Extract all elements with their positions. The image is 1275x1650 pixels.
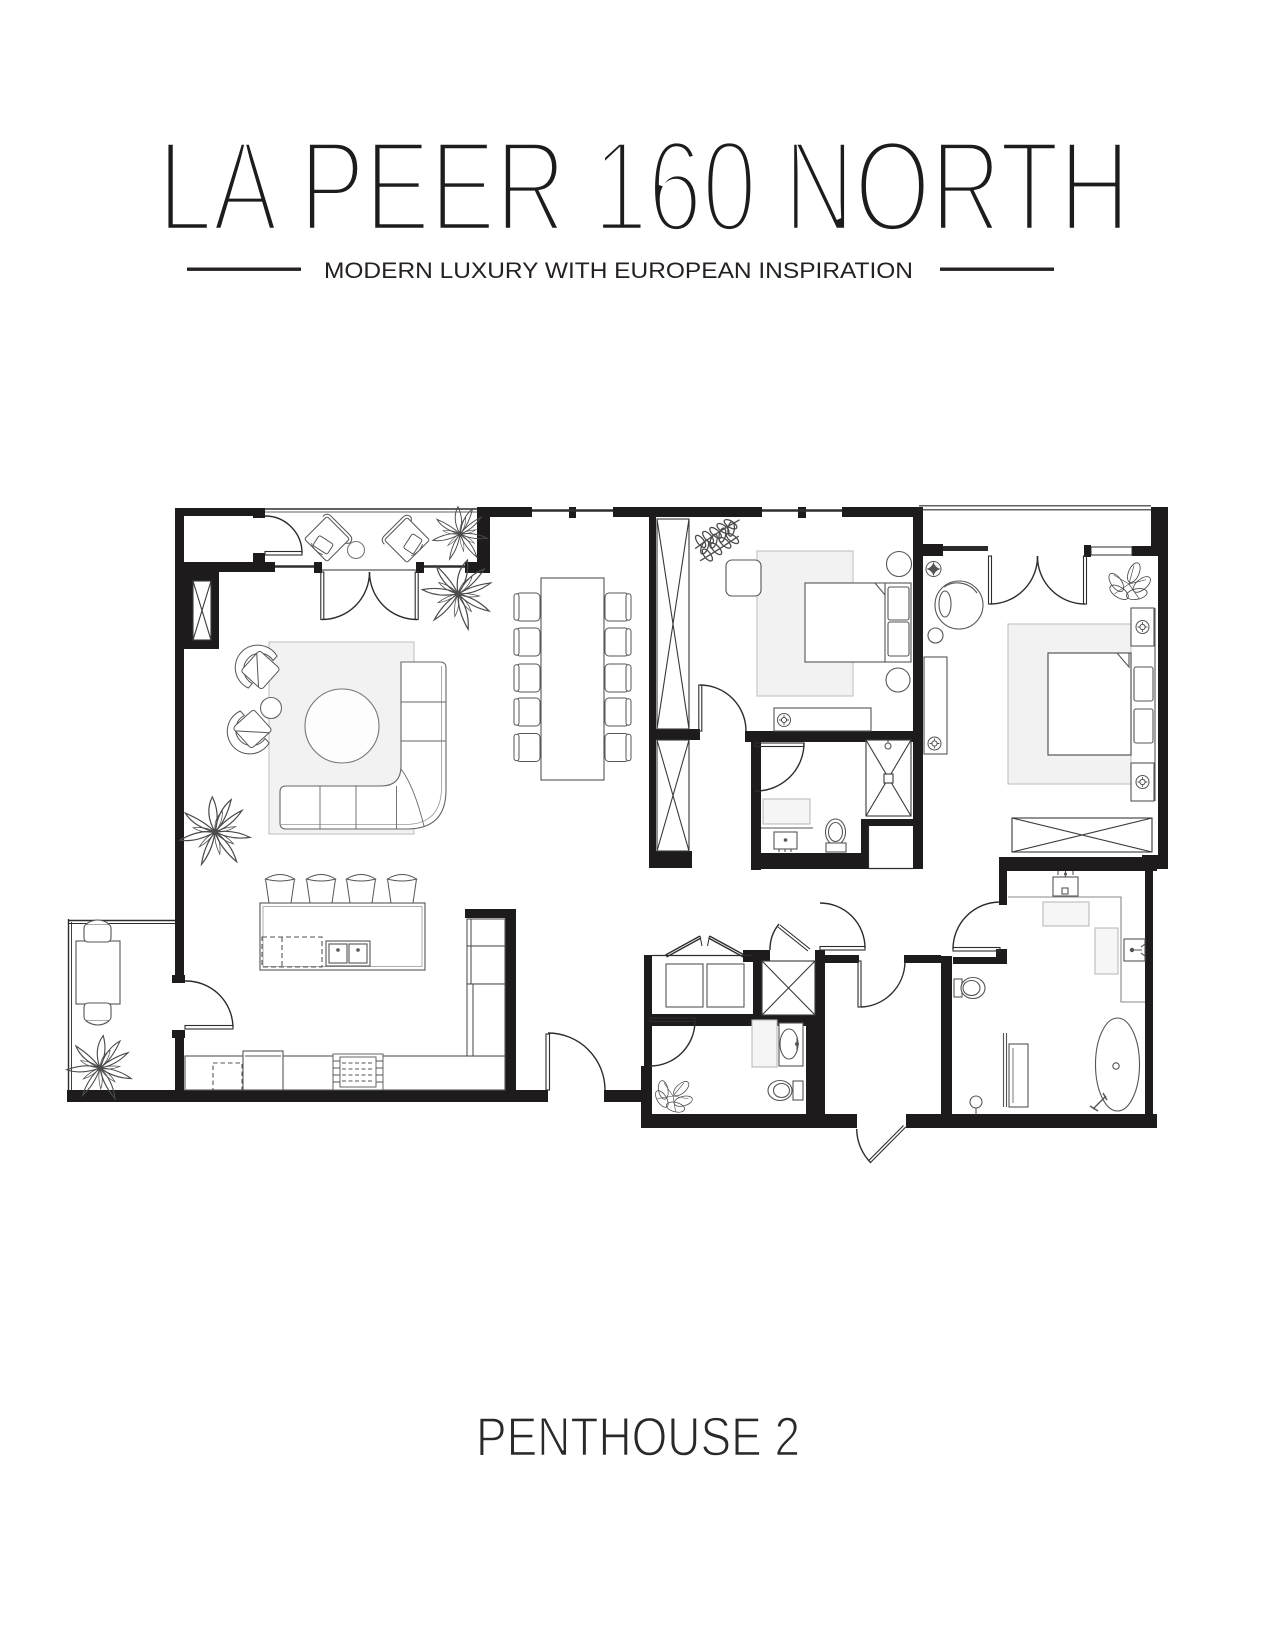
svg-text:LA PEER 160 NORTH: LA PEER 160 NORTH [158,113,1130,259]
svg-text:MODERN LUXURY WITH EUROPEAN IN: MODERN LUXURY WITH EUROPEAN INSPIRATION [324,258,913,283]
svg-text:PENTHOUSE 2: PENTHOUSE 2 [476,1407,800,1468]
